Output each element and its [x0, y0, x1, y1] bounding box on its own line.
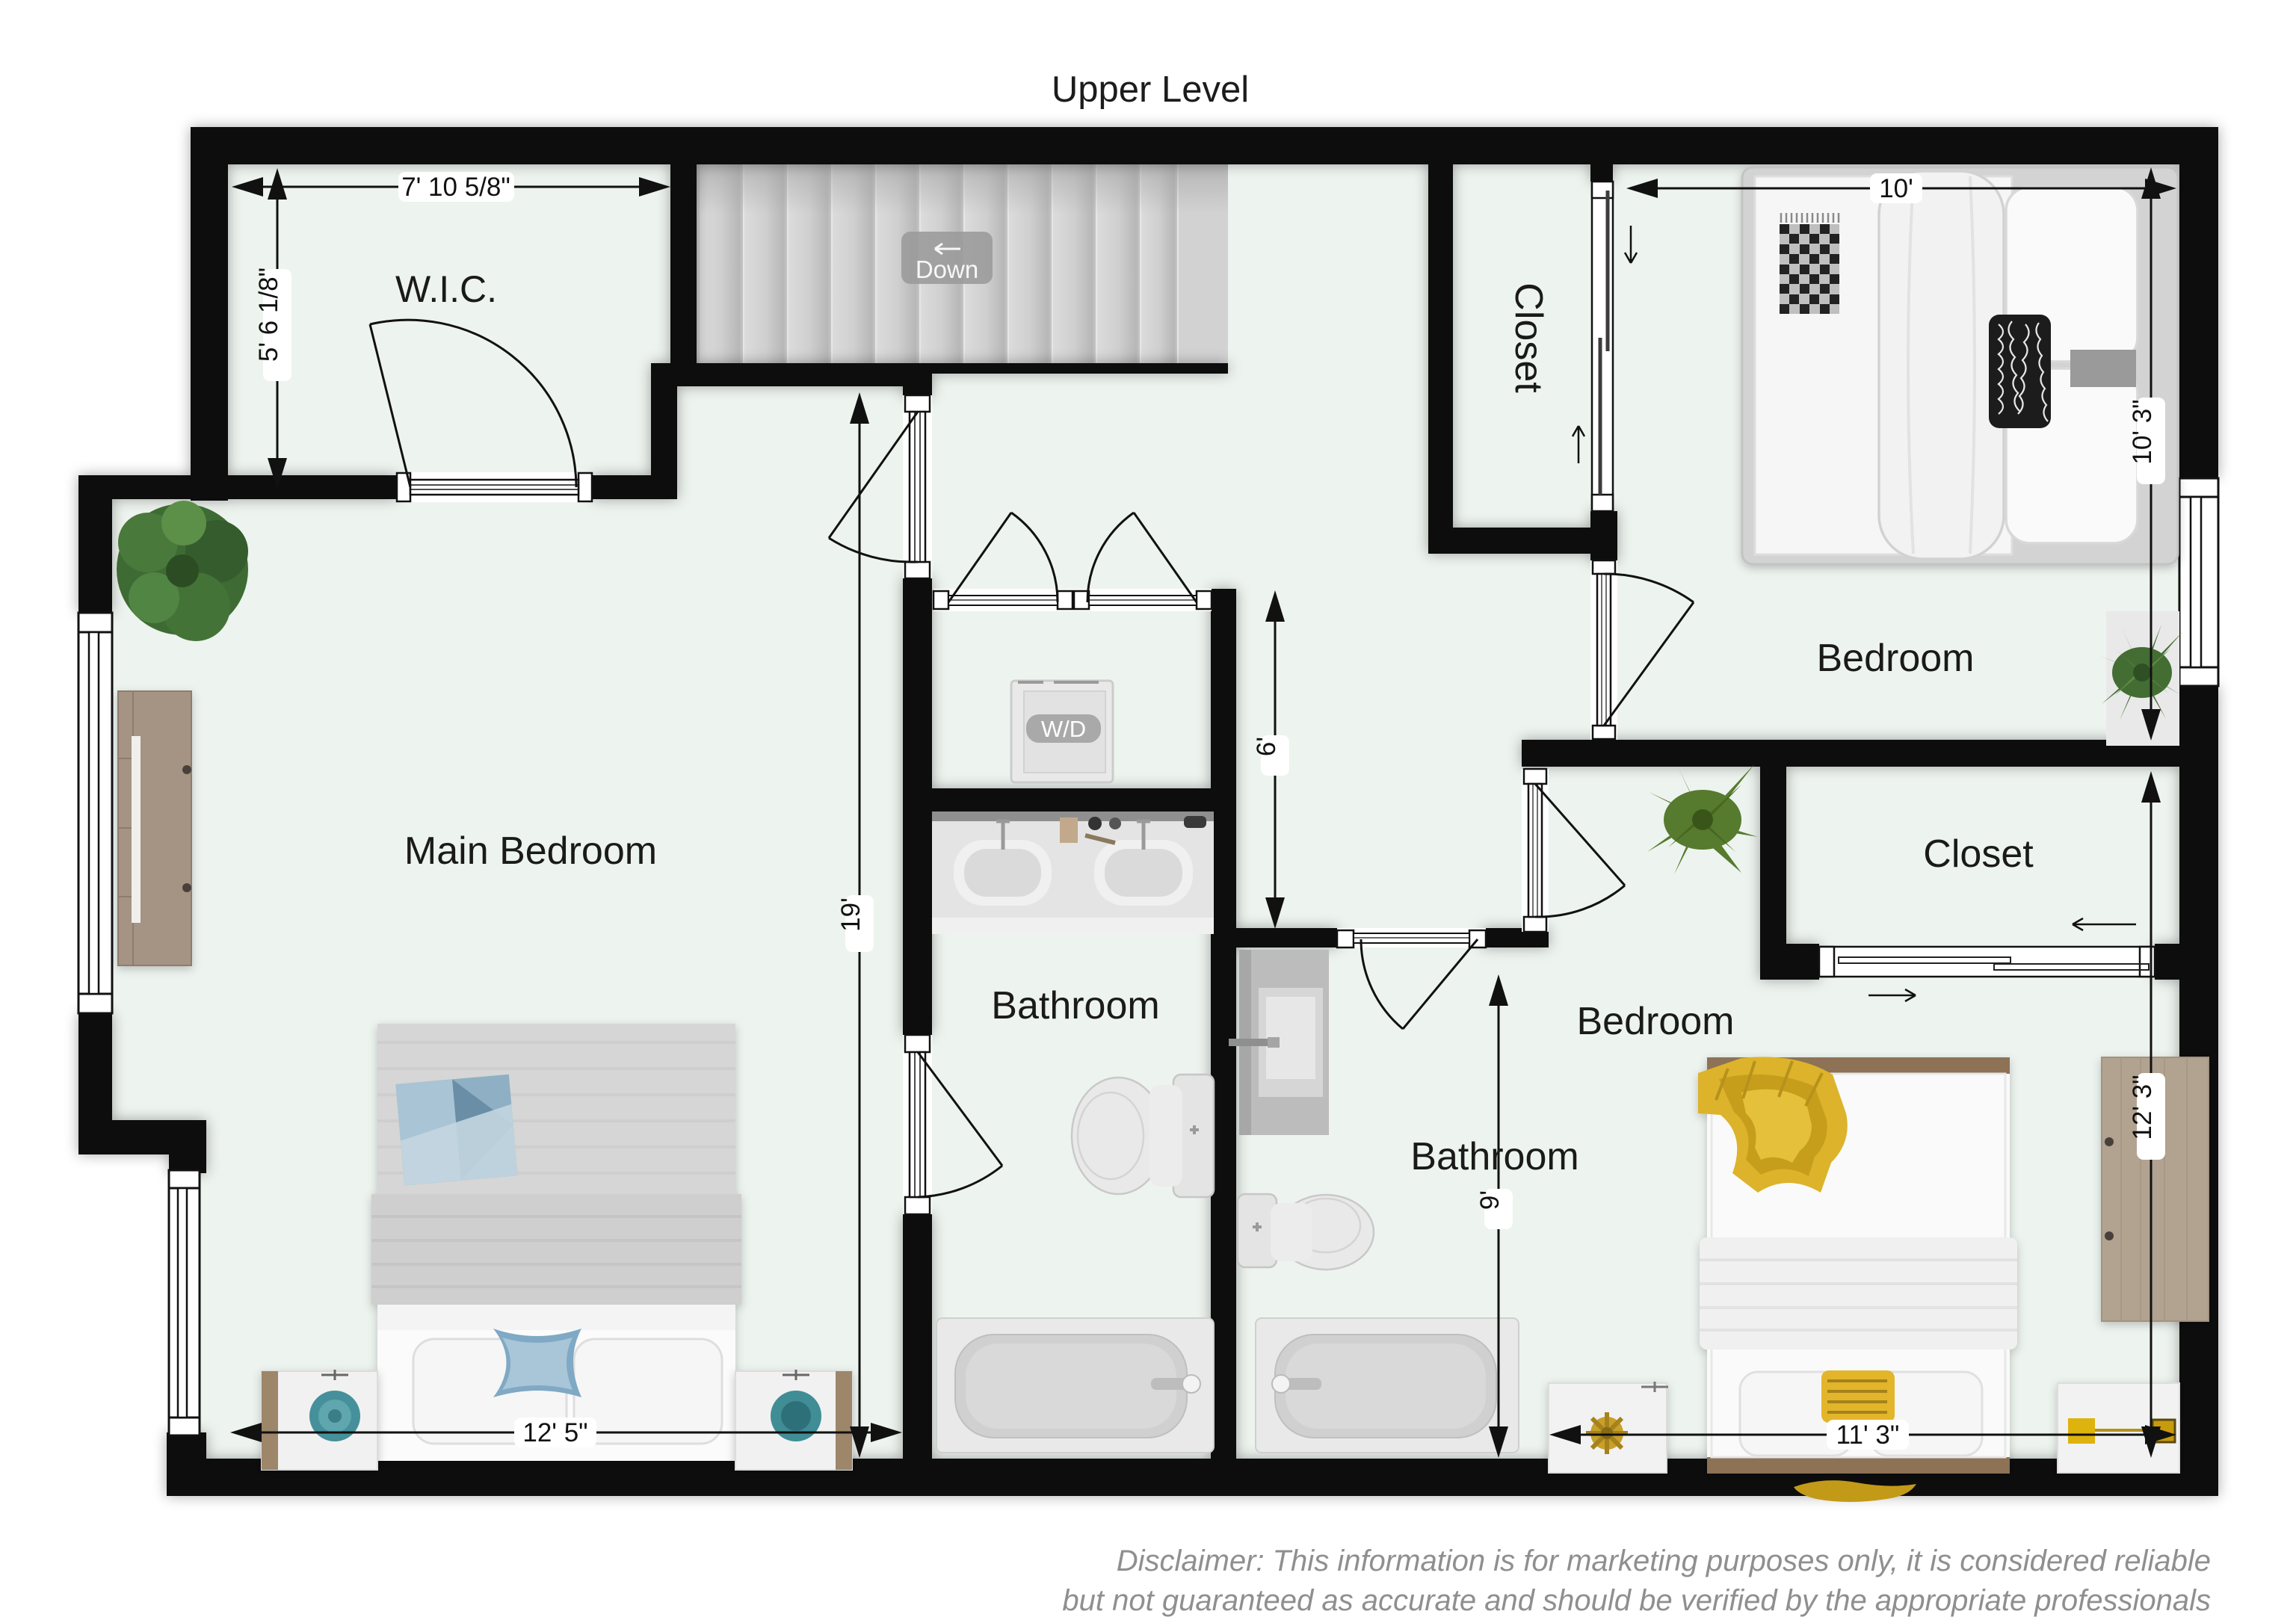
svg-text:Down: Down [916, 256, 978, 283]
svg-text:Disclaimer: This information i: Disclaimer: This information is for mark… [1117, 1545, 2211, 1577]
svg-text:W.I.C.: W.I.C. [395, 268, 497, 310]
svg-text:Upper Level: Upper Level [1052, 69, 1249, 110]
svg-text:but not guaranteed as accurate: but not guaranteed as accurate and shoul… [1062, 1584, 2211, 1617]
svg-text:Closet: Closet [1507, 282, 1550, 393]
svg-text:W/D: W/D [1041, 716, 1086, 742]
svg-text:Bathroom: Bathroom [1410, 1135, 1578, 1178]
svg-text:11' 3": 11' 3" [1836, 1420, 1900, 1450]
svg-text:6': 6' [1252, 737, 1281, 756]
svg-text:Closet: Closet [1923, 832, 2034, 876]
svg-text:Main Bedroom: Main Bedroom [404, 829, 657, 873]
svg-text:Bedroom: Bedroom [1577, 1000, 1735, 1043]
svg-text:12' 5": 12' 5" [522, 1418, 587, 1447]
svg-text:10' 3": 10' 3" [2128, 399, 2157, 464]
svg-text:19': 19' [836, 897, 865, 932]
svg-text:10': 10' [1879, 174, 1913, 203]
svg-text:Bathroom: Bathroom [991, 984, 1159, 1027]
svg-text:Bedroom: Bedroom [1817, 637, 1975, 680]
svg-text:5' 6 1/8": 5' 6 1/8" [254, 268, 283, 362]
svg-text:7' 10 5/8": 7' 10 5/8" [401, 173, 510, 202]
svg-text:9': 9' [1475, 1190, 1505, 1210]
svg-text:12' 3": 12' 3" [2128, 1075, 2157, 1140]
